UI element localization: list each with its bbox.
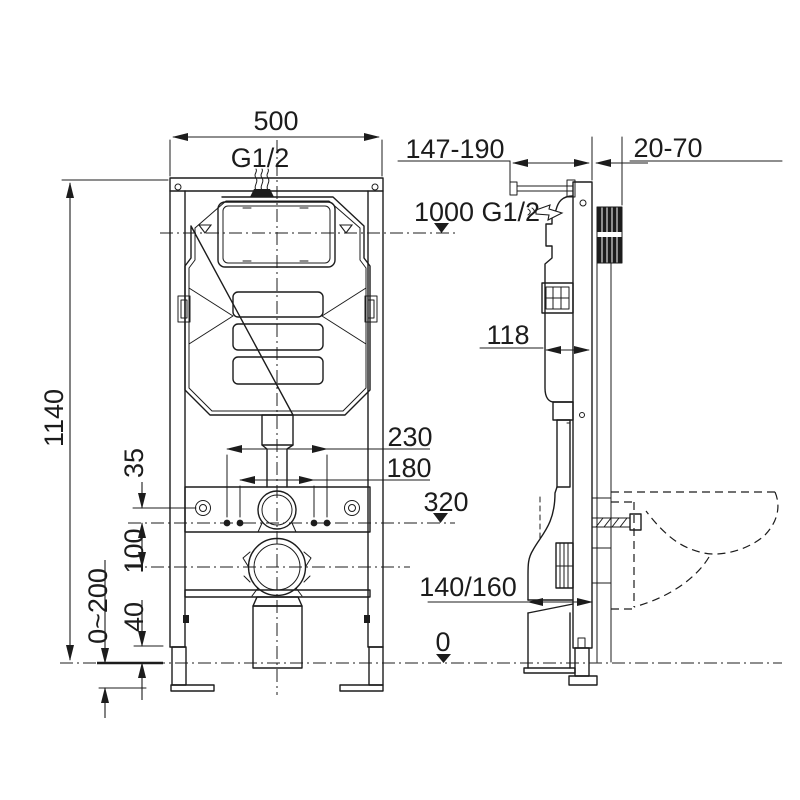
dim-label-0: 0 [435,627,450,657]
water-level-icon [199,225,211,233]
fixing-washer-left [196,501,211,516]
water-level-icon [340,225,352,233]
dim-label-140-160: 140/160 [419,572,517,602]
dim-label-40: 40 [119,602,149,632]
foot-plate-left [171,685,214,691]
outlet-base [524,668,575,673]
fixing-washer-right [345,501,360,516]
dimension-180: 180 [240,453,432,517]
wall-bracket-rod [510,180,575,197]
rail-adjuster-right [364,615,370,623]
leg-notch [578,638,585,648]
toilet-bowl-outline [611,492,778,609]
dim-label-500: 500 [253,106,298,136]
side-foot-plate [569,676,597,685]
dimension-0-200: 0~200 [83,560,146,718]
dim-label-100: 100 [119,528,149,573]
side-rail [569,182,597,685]
side-view [510,180,778,685]
dim-label-0-200: 0~200 [83,568,113,644]
connector-block [542,283,573,313]
cistern-slot [233,357,323,384]
front-view [170,140,383,695]
dim-label-1000-g12: 1000 G1/2 [414,197,540,227]
frame-hole-left [175,184,181,190]
dim-label-230: 230 [387,422,432,452]
dimension-320: 320 [128,487,469,523]
frame-hole-right [372,184,378,190]
dim-label-118: 118 [486,320,529,350]
dimension-147-190: 147-190 [398,134,592,192]
outlet-elbow [524,487,575,673]
foot-plate-right [340,685,383,691]
cistern-rib-right [322,288,366,344]
dim-label-180: 180 [386,453,431,483]
dim-label-35: 35 [119,448,149,478]
cistern-side-profile [542,196,573,487]
cistern-rib-left [189,288,233,344]
rail-adjuster-left [183,615,189,623]
dim-label-320: 320 [423,487,468,517]
dimension-140-160: 140/160 [419,572,592,602]
cistern-slot [233,292,323,317]
wall-section-lines [592,263,611,662]
dim-label-147-190: 147-190 [405,134,504,164]
dim-label-20-70: 20-70 [633,133,702,163]
rail-hole-top [580,200,586,206]
finished-wall-block [597,207,622,263]
dimension-40: 40 [119,600,163,700]
dimension-20-70: 20-70 [596,133,782,205]
flush-valve-block [553,402,573,420]
dim-label-g12-front: G1/2 [231,143,290,173]
rail-hole-mid [580,413,585,418]
dim-label-1140: 1140 [39,389,69,447]
bolt-nut [630,514,641,530]
dimension-0: 0 [435,627,451,663]
water-inlet-icon [250,169,274,197]
technical-drawing: 500 G1/2 1140 230 180 320 35 100 [0,0,800,800]
